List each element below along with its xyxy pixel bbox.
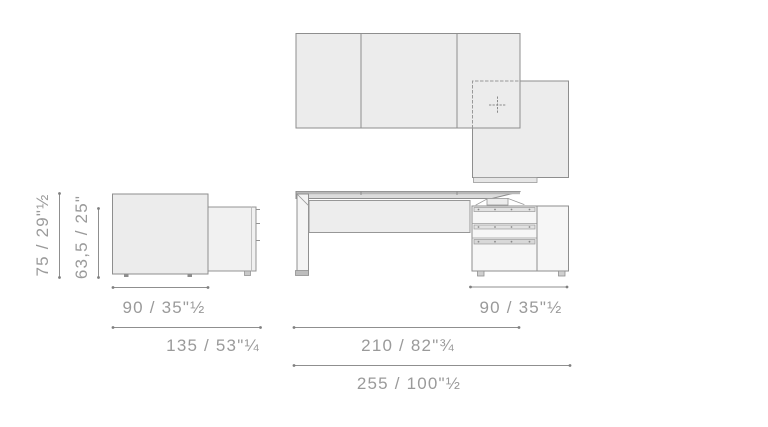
side-foot-right	[188, 274, 193, 277]
side-view	[113, 194, 260, 277]
side-pedestal-foot	[245, 271, 251, 276]
side-pedestal	[208, 207, 257, 271]
dim-line-height-total	[58, 192, 61, 279]
dim-label-height-total: 75 / 29"½	[33, 193, 52, 276]
dim-line-depth-desktop	[112, 286, 210, 289]
plan-view	[296, 34, 569, 183]
plan-pedestal-edge	[474, 178, 538, 183]
side-desk-panel	[113, 194, 209, 274]
dim-line-height-clearance	[97, 207, 100, 279]
dim-line-depth-total	[112, 326, 262, 329]
dim-label-width-total: 255 / 100"½	[357, 374, 461, 393]
technical-drawing-canvas: 75 / 29"½ 63,5 / 25" 90 / 35"½ 135 / 53"…	[0, 0, 768, 427]
front-foot-left	[478, 271, 485, 276]
front-modesty-panel	[309, 201, 470, 233]
front-leg-foot	[296, 271, 309, 276]
dim-label-width-return: 90 / 35"½	[479, 298, 562, 317]
dim-label-depth-total: 135 / 53"¼	[166, 336, 260, 355]
front-return-cabinet	[537, 206, 569, 271]
dim-line-width-desktop	[293, 326, 521, 329]
front-drawer-pedestal	[472, 206, 537, 271]
side-foot-left	[124, 274, 129, 277]
dim-line-width-return	[469, 286, 568, 289]
front-view	[296, 192, 569, 277]
dim-line-width-total	[293, 364, 572, 367]
front-foot-right	[559, 271, 566, 276]
dim-label-depth-desktop: 90 / 35"½	[122, 298, 205, 317]
front-leg	[297, 194, 309, 275]
front-desktop-bracket	[476, 199, 524, 206]
desk-dimension-drawing: 75 / 29"½ 63,5 / 25" 90 / 35"½ 135 / 53"…	[0, 0, 768, 427]
side-drawer-handle-ticks	[256, 210, 260, 241]
dim-label-width-desktop: 210 / 82"¾	[361, 336, 455, 355]
front-desktop-top-edge	[297, 192, 521, 194]
dim-label-height-clearance: 63,5 / 25"	[72, 195, 91, 279]
